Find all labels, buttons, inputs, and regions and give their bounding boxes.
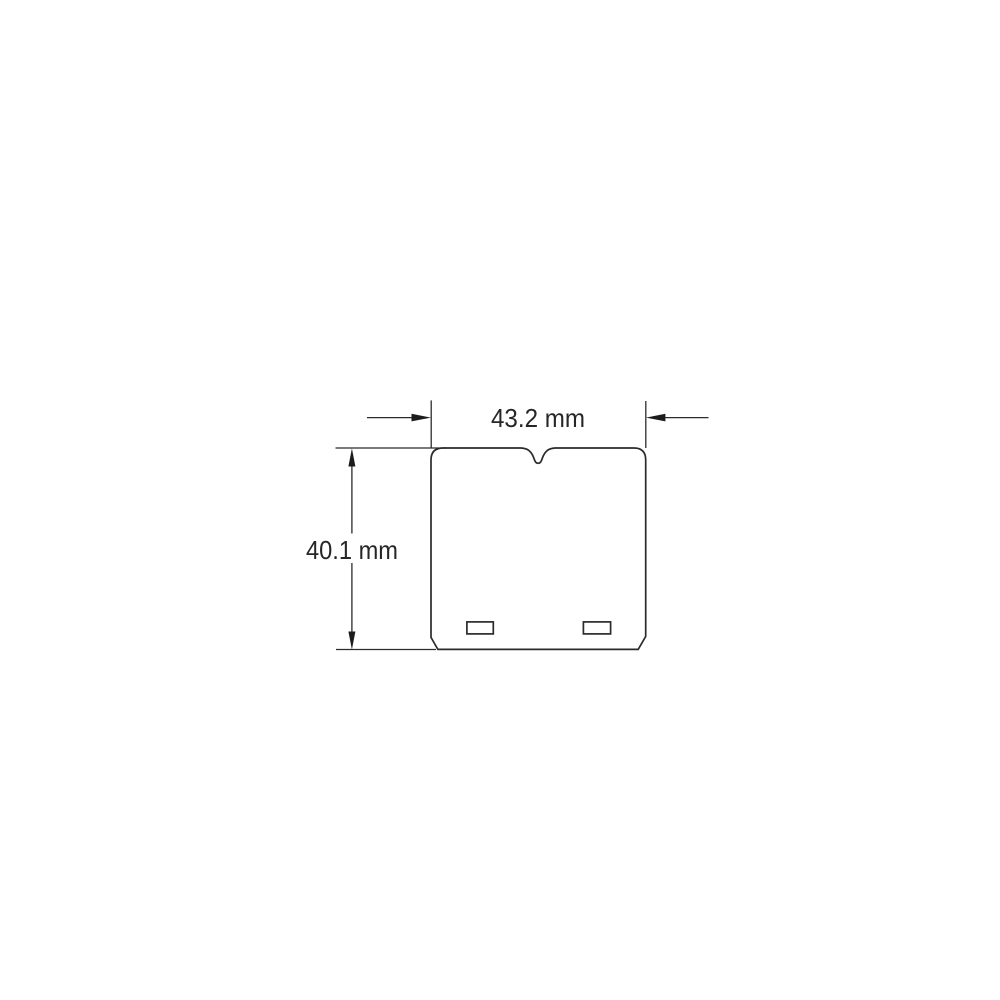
svg-text:43.2 mm: 43.2 mm (491, 403, 585, 433)
svg-text:40.1 mm: 40.1 mm (306, 535, 398, 565)
